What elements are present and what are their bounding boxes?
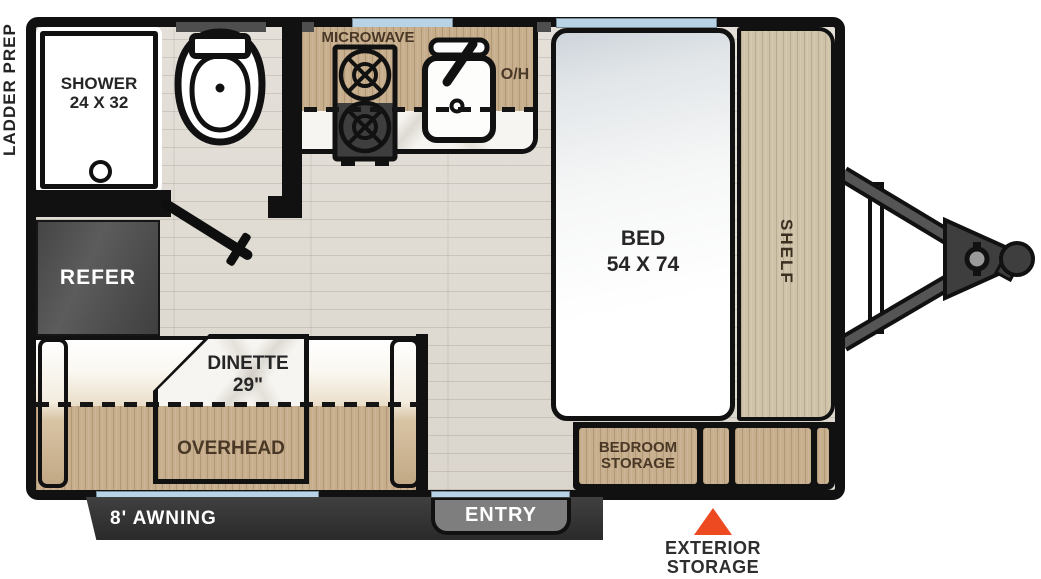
bedroom-storage-label: BEDROOM STORAGE — [579, 440, 697, 473]
bedroom-storage-cabinet: BEDROOM STORAGE — [573, 422, 835, 490]
cabinet-panel — [703, 428, 729, 484]
wall-tab — [537, 22, 551, 32]
dinette-overhead-dashed-line — [36, 402, 418, 407]
entry-label: ENTRY — [465, 504, 537, 527]
ladder-prep-label: LADDER PREP — [0, 14, 22, 166]
window-top-bed — [556, 18, 717, 28]
cabinet-panel — [817, 428, 829, 484]
bathroom-wall-bottom — [26, 190, 171, 217]
trailer-tongue-icon — [840, 150, 1041, 362]
bathroom-wall-right — [282, 17, 302, 218]
bed: BED 54 X 74 — [551, 28, 735, 421]
shelf: SHELF — [737, 27, 835, 421]
bedroom-storage-door: BEDROOM STORAGE — [579, 428, 697, 484]
cabinet-panel — [735, 428, 811, 484]
overhead-cabinet-abbr-label: O/H — [492, 66, 538, 84]
dinette-bench-left — [38, 338, 68, 488]
bed-label: BED 54 X 74 — [556, 226, 730, 279]
dinette-wall-right — [416, 334, 428, 490]
kitchen-overhead-dashed-line — [304, 107, 534, 112]
stove-burners-icon — [331, 41, 399, 167]
awning-label: 8' AWNING — [110, 508, 217, 530]
entry-step: ENTRY — [431, 498, 571, 535]
drain-icon — [89, 160, 112, 183]
overhead-label: OVERHEAD — [158, 438, 304, 459]
shelf-label: SHELF — [741, 31, 831, 417]
triangle-marker-icon — [694, 508, 732, 535]
shower-stall: SHOWER 24 X 32 — [40, 31, 158, 189]
toilet-icon — [168, 26, 272, 150]
refrigerator-label: REFER — [60, 266, 136, 290]
sink-icon — [417, 36, 501, 148]
exterior-storage-label: EXTERIOR STORAGE — [633, 539, 793, 578]
shower-label: SHOWER 24 X 32 — [45, 74, 153, 112]
bathroom-wall-foot — [268, 196, 302, 218]
floorplan-scene: LADDER PREP SHOWER 24 X 32 MIRROR — [0, 0, 1041, 579]
dinette-label: DINETTE 29" — [192, 353, 304, 397]
refrigerator: REFER — [36, 220, 160, 336]
